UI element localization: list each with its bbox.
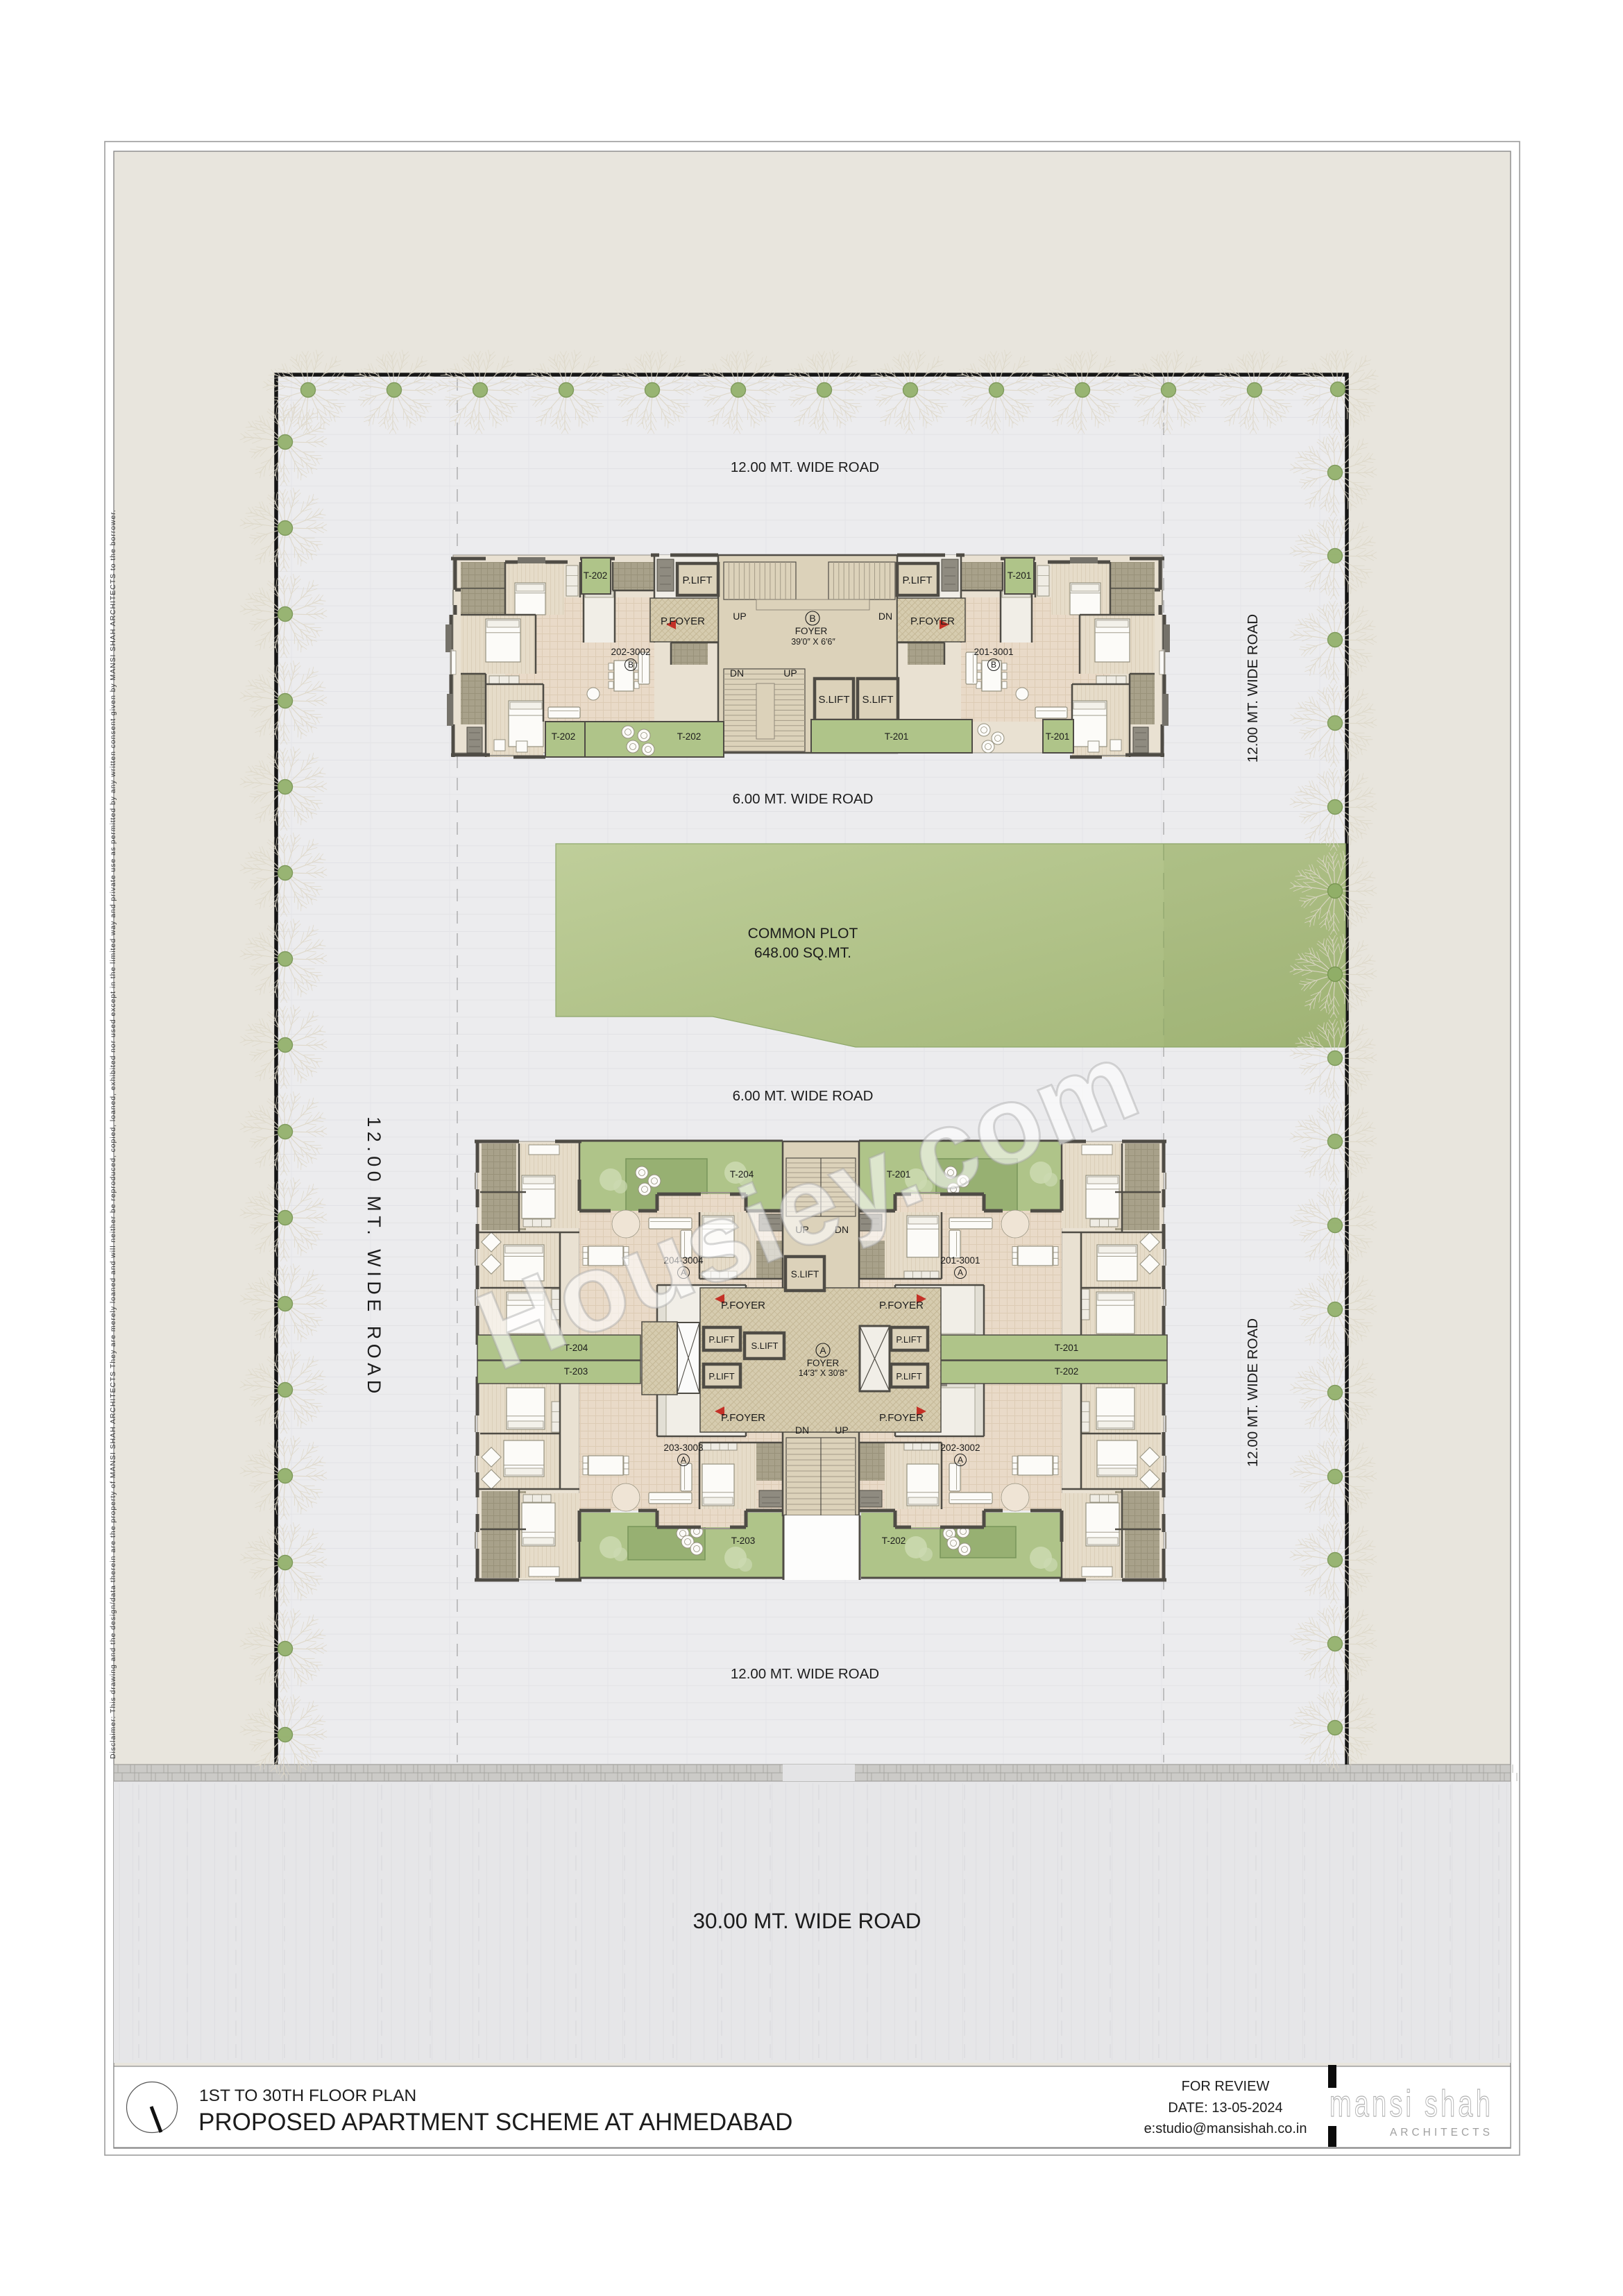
svg-text:6.00 MT. WIDE ROAD: 6.00 MT. WIDE ROAD (733, 791, 874, 807)
svg-text:T-202: T-202 (882, 1536, 906, 1546)
svg-text:P.LIFT: P.LIFT (896, 1334, 921, 1345)
svg-text:S.LIFT: S.LIFT (818, 694, 849, 706)
svg-text:T-202: T-202 (677, 731, 702, 742)
svg-text:S.LIFT: S.LIFT (862, 694, 893, 706)
svg-text:P.LIFT: P.LIFT (708, 1371, 734, 1381)
svg-text:P.LIFT: P.LIFT (902, 575, 932, 586)
svg-text:T-201: T-201 (1046, 731, 1070, 742)
svg-text:P.FOYER: P.FOYER (879, 1412, 924, 1424)
svg-text:A: A (819, 1345, 826, 1356)
svg-text:A: A (681, 1455, 686, 1465)
svg-text:202-3002: 202-3002 (611, 647, 650, 657)
svg-text:P.LIFT: P.LIFT (682, 575, 712, 586)
svg-text:UP: UP (835, 1425, 848, 1436)
svg-text:T-202: T-202 (552, 731, 576, 742)
svg-text:FOYER: FOYER (807, 1358, 840, 1368)
svg-text:DN: DN (878, 611, 892, 622)
svg-text:202-3002: 202-3002 (940, 1443, 980, 1453)
svg-text:FOYER: FOYER (795, 626, 828, 636)
svg-text:B: B (628, 660, 634, 670)
svg-text:T-201: T-201 (885, 731, 909, 742)
svg-text:ARCHITECTS: ARCHITECTS (1390, 2127, 1493, 2138)
svg-text:e:studio@mansishah.co.in: e:studio@mansishah.co.in (1144, 2121, 1307, 2136)
svg-text:201-3001: 201-3001 (940, 1255, 980, 1266)
svg-text:203-3003: 203-3003 (663, 1443, 703, 1453)
svg-text:DN: DN (795, 1425, 809, 1436)
svg-text:12.00 MT. WIDE ROAD: 12.00 MT. WIDE ROAD (731, 459, 879, 475)
svg-text:DN: DN (730, 667, 744, 679)
svg-text:14′3″ X 30′8″: 14′3″ X 30′8″ (799, 1368, 848, 1378)
svg-text:P.FOYER: P.FOYER (661, 615, 705, 627)
svg-text:B: B (809, 613, 815, 624)
svg-text:12.00 MT. WIDE ROAD: 12.00 MT. WIDE ROAD (731, 1666, 879, 1682)
svg-text:PROPOSED APARTMENT SCHEME AT A: PROPOSED APARTMENT SCHEME AT AHMEDABAD (198, 2109, 792, 2136)
svg-text:39′0″ X 6′6″: 39′0″ X 6′6″ (791, 637, 835, 647)
svg-text:12.00 MT. WIDE ROAD: 12.00 MT. WIDE ROAD (364, 1116, 384, 1398)
svg-text:1ST TO 30TH FLOOR PLAN: 1ST TO 30TH FLOOR PLAN (199, 2086, 416, 2105)
svg-text:DATE: 13-05-2024: DATE: 13-05-2024 (1168, 2100, 1282, 2116)
svg-text:P.LIFT: P.LIFT (896, 1371, 921, 1381)
svg-text:201-3001: 201-3001 (974, 647, 1013, 657)
svg-text:P.FOYER: P.FOYER (879, 1300, 924, 1311)
svg-text:12.00 MT. WIDE ROAD: 12.00 MT. WIDE ROAD (1245, 1318, 1261, 1467)
svg-text:COMMON PLOT: COMMON PLOT (748, 926, 858, 942)
svg-text:12.00 MT. WIDE ROAD: 12.00 MT. WIDE ROAD (1245, 614, 1261, 763)
svg-text:648.00 SQ.MT.: 648.00 SQ.MT. (754, 945, 851, 961)
svg-text:FOR REVIEW: FOR REVIEW (1182, 2079, 1270, 2094)
svg-text:T-203: T-203 (731, 1536, 756, 1546)
svg-text:30.00 MT. WIDE ROAD: 30.00 MT. WIDE ROAD (692, 1908, 921, 1933)
svg-text:Disclaimer: This drawing and t: Disclaimer: This drawing and the design/… (109, 510, 117, 1759)
svg-text:A: A (958, 1268, 963, 1277)
svg-text:A: A (958, 1455, 963, 1465)
svg-text:UP: UP (783, 667, 797, 679)
svg-text:P.FOYER: P.FOYER (910, 615, 955, 627)
svg-text:B: B (991, 660, 996, 670)
svg-text:T-201: T-201 (1008, 570, 1032, 581)
svg-text:T-202: T-202 (584, 570, 608, 581)
svg-text:S.LIFT: S.LIFT (751, 1341, 778, 1351)
svg-text:P.FOYER: P.FOYER (721, 1412, 765, 1424)
svg-text:T-202: T-202 (1055, 1366, 1079, 1377)
svg-text:P.LIFT: P.LIFT (708, 1334, 734, 1345)
svg-text:UP: UP (733, 611, 746, 622)
svg-text:T-201: T-201 (1055, 1343, 1079, 1353)
svg-text:6.00 MT. WIDE ROAD: 6.00 MT. WIDE ROAD (733, 1088, 874, 1104)
svg-text:mansi shah: mansi shah (1329, 2083, 1493, 2125)
